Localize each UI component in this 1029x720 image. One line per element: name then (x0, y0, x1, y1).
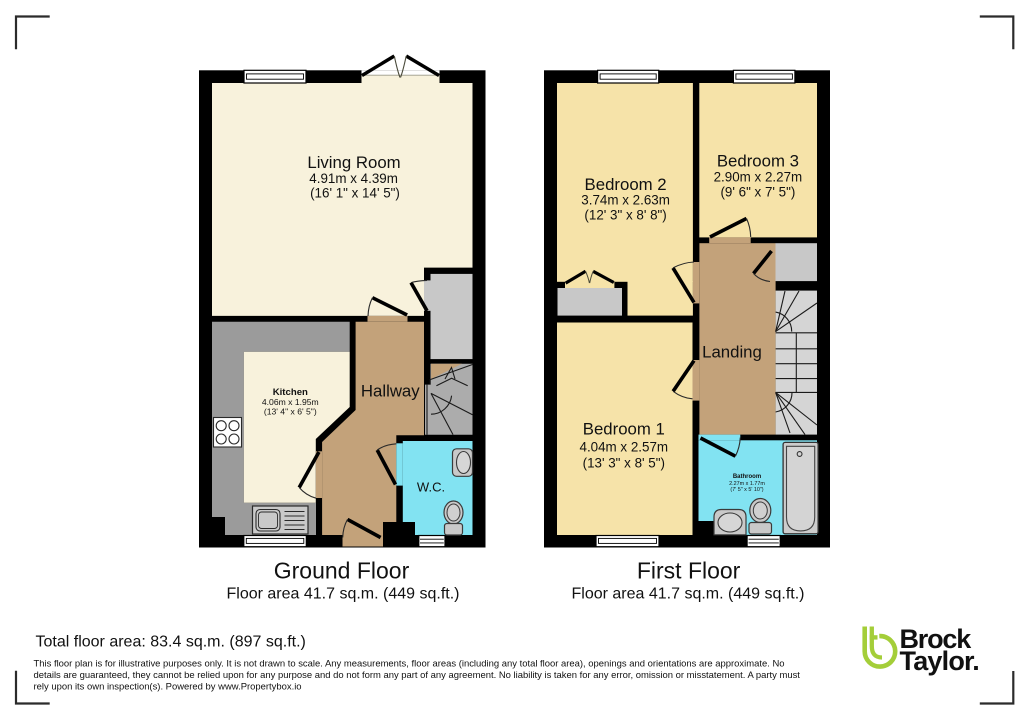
svg-text:(16' 1" x 14' 5"): (16' 1" x 14' 5") (310, 185, 400, 200)
svg-text:Taylor.: Taylor. (900, 646, 979, 676)
svg-text:Ground Floor: Ground Floor (274, 557, 410, 583)
svg-text:2.27m x 1.77m: 2.27m x 1.77m (729, 481, 765, 487)
svg-text:3.74m x 2.63m: 3.74m x 2.63m (581, 193, 670, 208)
svg-text:Hallway: Hallway (361, 382, 420, 401)
svg-text:Bedroom 2: Bedroom 2 (585, 175, 667, 194)
svg-text:4.91m x 4.39m: 4.91m x 4.39m (309, 171, 398, 186)
svg-text:(12' 3" x 8' 8"): (12' 3" x 8' 8") (584, 208, 666, 223)
svg-text:2.90m x 2.27m: 2.90m x 2.27m (714, 169, 803, 184)
svg-text:First Floor: First Floor (637, 557, 741, 583)
svg-text:details are guaranteed, they c: details are guaranteed, they cannot be r… (34, 670, 801, 681)
svg-text:(13' 4" x 6' 5"): (13' 4" x 6' 5") (264, 406, 317, 416)
svg-text:Floor area 41.7 sq.m. (449 sq.: Floor area 41.7 sq.m. (449 sq.ft.) (572, 585, 805, 602)
svg-text:This floor plan is for illustr: This floor plan is for illustrative purp… (34, 659, 785, 670)
svg-text:W.C.: W.C. (417, 480, 445, 495)
svg-text:(9' 6" x 7' 5"): (9' 6" x 7' 5") (720, 184, 795, 199)
svg-text:Bathroom: Bathroom (733, 474, 761, 480)
svg-text:(7' 5" x 5' 10"): (7' 5" x 5' 10") (730, 487, 763, 493)
svg-text:Bedroom 1: Bedroom 1 (583, 420, 665, 439)
svg-text:4.04m x 2.57m: 4.04m x 2.57m (580, 439, 669, 454)
svg-text:rely upon its own inspection(s: rely upon its own inspection(s). Powered… (34, 682, 302, 693)
svg-text:Landing: Landing (702, 343, 762, 362)
svg-text:Bedroom 3: Bedroom 3 (717, 152, 799, 171)
svg-text:(13' 3" x 8' 5"): (13' 3" x 8' 5") (583, 456, 665, 471)
svg-text:Floor area 41.7 sq.m. (449 sq.: Floor area 41.7 sq.m. (449 sq.ft.) (227, 585, 460, 602)
svg-text:Total floor area: 83.4 sq.m. (: Total floor area: 83.4 sq.m. (897 sq.ft.… (36, 633, 306, 650)
svg-text:Living Room: Living Room (307, 153, 400, 172)
